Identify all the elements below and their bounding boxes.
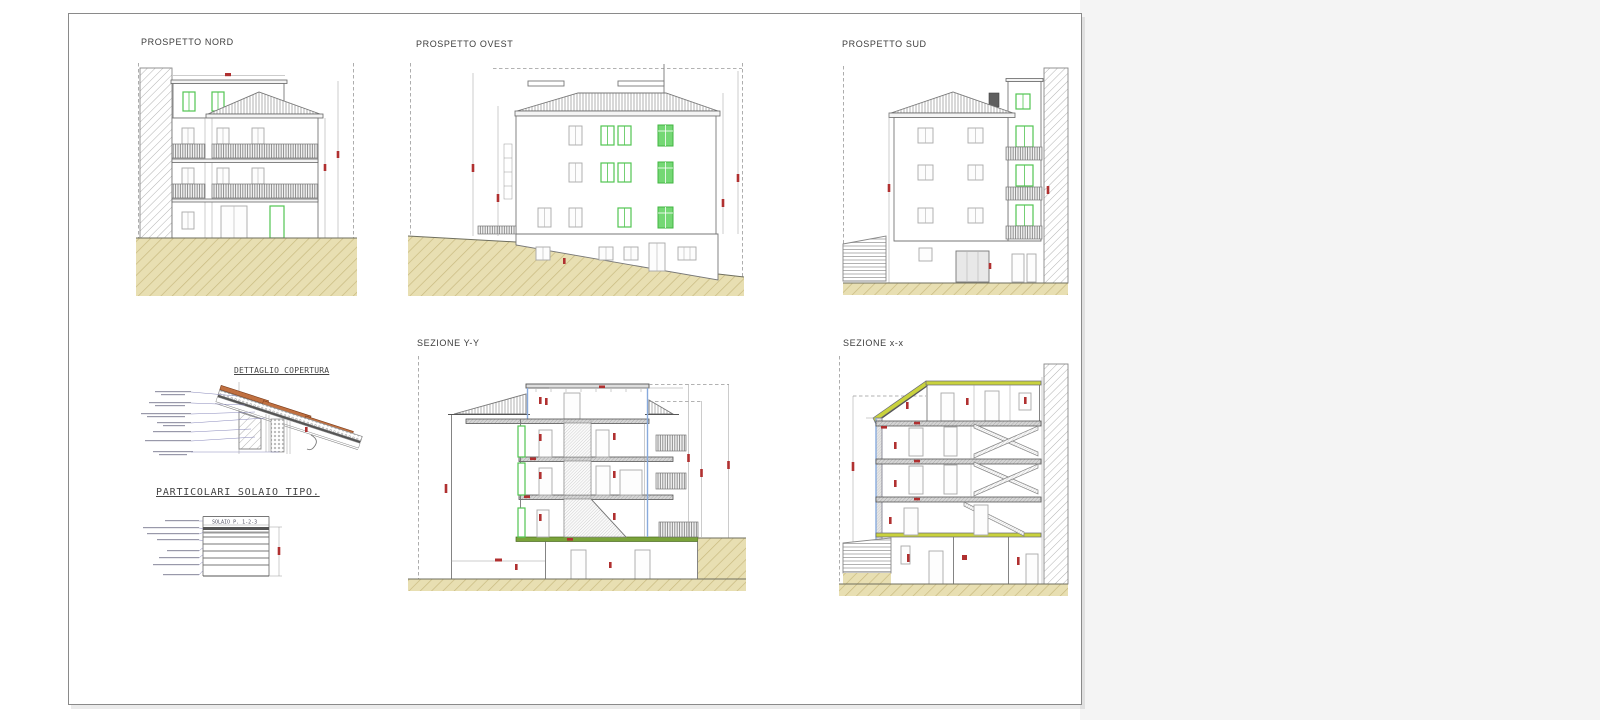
sezione-xx-drawing <box>839 356 1068 596</box>
balcony-railing <box>478 226 516 234</box>
cavity-insulation <box>271 419 284 452</box>
ground-hatch <box>698 538 746 579</box>
prospetto-ovest-drawing <box>408 63 744 296</box>
drawing-sheet: PROSPETTO NORD PROSPETTO OVEST PROSPETTO… <box>68 13 1082 705</box>
particolari-solaio-drawing: SOLAIO P. 1-2-3 <box>143 517 282 577</box>
retaining-wall <box>843 236 886 281</box>
balcony-railing <box>172 184 205 198</box>
balcony-railing <box>1006 226 1042 239</box>
terrace-railing <box>659 522 698 537</box>
annotation-labels <box>143 520 203 575</box>
ground-hatch <box>843 573 891 584</box>
green-door <box>270 206 284 238</box>
dettaglio-copertura-drawing <box>141 382 364 455</box>
balcony-railing <box>1006 187 1042 200</box>
adjacent-wall-hatch <box>140 68 172 238</box>
prospetto-sud-drawing <box>843 66 1068 295</box>
balcony-railing <box>212 184 318 198</box>
stair-core <box>564 419 626 537</box>
basement-slab <box>876 533 1041 537</box>
balcony-railing <box>172 144 205 158</box>
ground-hatch <box>839 584 1068 596</box>
viewer-canvas: PROSPETTO NORD PROSPETTO OVEST PROSPETTO… <box>0 0 1600 720</box>
ground-hatch <box>136 238 357 296</box>
green-window <box>1016 126 1033 226</box>
slab-layers <box>203 527 269 576</box>
garage-door <box>956 251 989 282</box>
prospetto-nord-drawing <box>136 63 357 296</box>
balcony-railing <box>656 473 686 489</box>
slab-label: SOLAIO P. 1-2-3 <box>212 520 257 526</box>
green-frame <box>518 426 525 537</box>
ground-floor-slab <box>516 537 698 542</box>
gutter-profile <box>307 435 316 450</box>
sheet-graphics: SOLAIO P. 1-2-3 <box>69 14 1081 704</box>
adjacent-wall-hatch <box>1044 364 1068 584</box>
gray-window <box>182 168 264 184</box>
masonry-hatch <box>239 412 261 449</box>
retaining-wall <box>843 538 891 573</box>
balcony-railing <box>212 144 318 158</box>
ground-hatch <box>408 579 746 591</box>
interior-doors <box>904 426 988 535</box>
flat-roof <box>926 381 1041 385</box>
sezione-yy-drawing <box>408 356 746 591</box>
ground-hatch <box>843 283 1068 295</box>
adjacent-wall-hatch <box>1044 68 1068 283</box>
balcony-railing <box>1006 147 1042 160</box>
gray-window <box>182 128 264 144</box>
roof-layers <box>215 385 364 449</box>
sloped-roof <box>873 381 928 422</box>
viewer-empty-area <box>1080 0 1600 720</box>
hipped-roof <box>515 93 720 116</box>
balcony-railing <box>656 435 686 451</box>
